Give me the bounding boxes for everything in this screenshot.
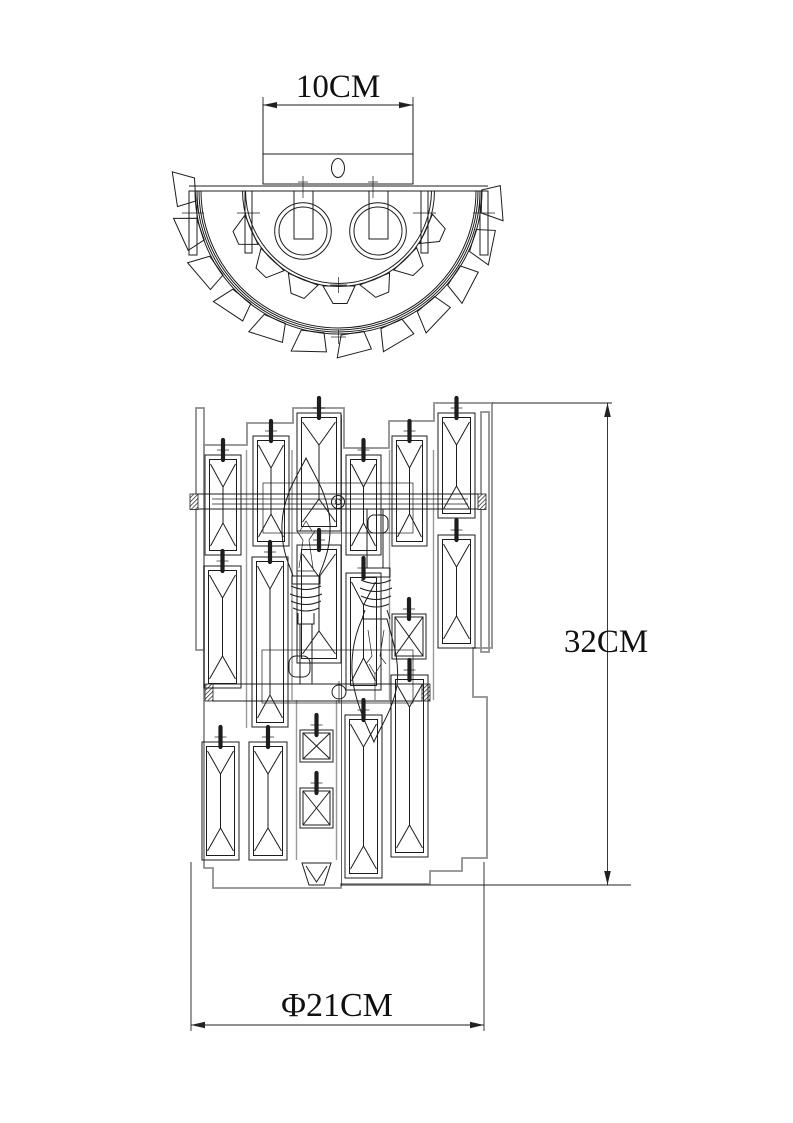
crystal-gem: [374, 317, 415, 352]
dimension-32cm: 32CM: [341, 403, 648, 885]
arrowhead-down: [604, 871, 611, 885]
rim-end-caps: [182, 191, 495, 255]
crystal-gem: [172, 171, 196, 207]
crystal-bar: [346, 440, 381, 555]
crystal-bar: [249, 727, 287, 860]
plate-screw-marks: [298, 176, 378, 198]
bulb-socket-cap: [292, 576, 320, 584]
crystal-bar: [346, 558, 381, 690]
crystal-bar: [252, 542, 288, 727]
mounting-band-upper: [190, 494, 486, 510]
crystal-bar: [297, 530, 341, 663]
crystal-gem: [481, 185, 505, 221]
band-hatch-left: [205, 684, 213, 701]
crystal-gem: [282, 273, 318, 301]
top-width-dimension-label: 10CM: [296, 69, 380, 105]
dimension-annotations: 32CM Φ21CM: [191, 403, 648, 1031]
crystal-gem: [334, 331, 372, 358]
band-hatch-right: [478, 494, 486, 510]
band-hatch-left: [190, 494, 198, 510]
dimension-10cm: 10CM: [263, 69, 413, 113]
diameter-dimension-label: Φ21CM: [281, 987, 393, 1024]
crystal-bar: [297, 398, 341, 531]
crystal-gem: [229, 215, 258, 251]
crystal-gem: [249, 248, 284, 283]
keyhole-slot: [332, 159, 345, 178]
band-screw-ring: [332, 496, 345, 509]
lower-bracket-box: [262, 650, 413, 703]
crystal-gem: [323, 286, 355, 304]
crystal-bar: [392, 421, 427, 546]
crystal-gem: [291, 329, 329, 356]
arrowhead-left: [191, 1022, 205, 1029]
wall-mount-bar: [189, 186, 488, 191]
crystal-bar: [345, 700, 382, 878]
crystal-bar: [253, 421, 289, 546]
oval-link-upper: [368, 515, 388, 533]
screw-posts: [237, 191, 436, 253]
crystal-trapezoid: [302, 863, 331, 885]
outer-rim-arcs: [195, 191, 482, 335]
crystal-gem: [443, 262, 481, 304]
arrowhead-up: [604, 403, 611, 417]
arrowhead-right: [470, 1022, 484, 1029]
socket-threads: [290, 586, 322, 611]
crystal-bar: [438, 398, 475, 518]
right-edge-strip: [481, 412, 489, 652]
lamp-socket-right: [350, 191, 407, 259]
height-dimension-label: 32CM: [564, 624, 648, 660]
crystal-gem: [213, 284, 254, 324]
crystal-square: [300, 715, 333, 762]
backplate-rails: [247, 450, 434, 860]
crystal-bar: [205, 440, 241, 555]
bulb-filament: [297, 521, 315, 571]
crystal-gem: [360, 273, 396, 301]
mounting-plate: [263, 105, 413, 184]
crystal-bar: [202, 727, 239, 860]
crystal-gem: [188, 250, 226, 292]
drawing-canvas: 10CM: [0, 0, 793, 1123]
top-view-drawing: 10CM: [172, 69, 504, 358]
left-edge-strip: [196, 408, 204, 650]
crystal-gem: [174, 211, 206, 251]
crystal-bar: [438, 520, 475, 648]
crystal-gem: [419, 214, 448, 250]
front-view-drawing: [190, 398, 492, 888]
sconce-technical-drawing: 10CM: [0, 0, 793, 1123]
crystal-square: [300, 773, 333, 828]
crystal-bar: [204, 551, 241, 688]
lamp-socket-left: [275, 191, 332, 259]
